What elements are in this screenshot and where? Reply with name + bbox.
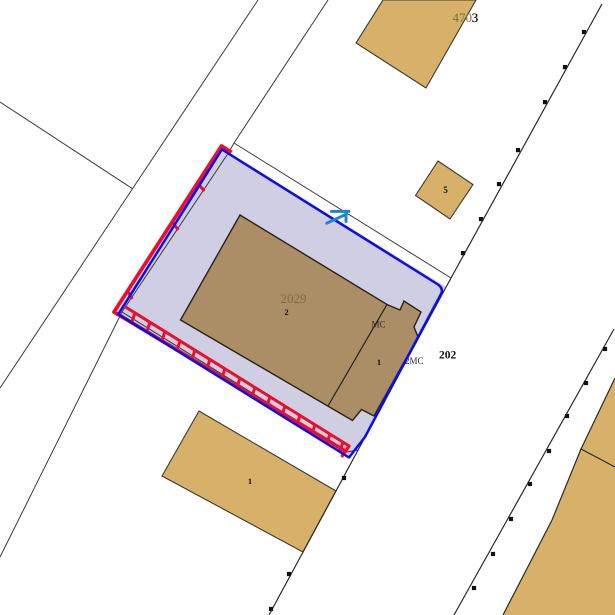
svg-text:1: 1 (248, 476, 252, 486)
svg-text:2: 2 (284, 307, 288, 317)
svg-text:5: 5 (443, 185, 448, 195)
svg-text:1: 1 (377, 357, 381, 367)
svg-text:202: 202 (439, 350, 457, 362)
svg-text:3: 3 (472, 10, 479, 25)
svg-text:2029: 2029 (281, 291, 307, 306)
